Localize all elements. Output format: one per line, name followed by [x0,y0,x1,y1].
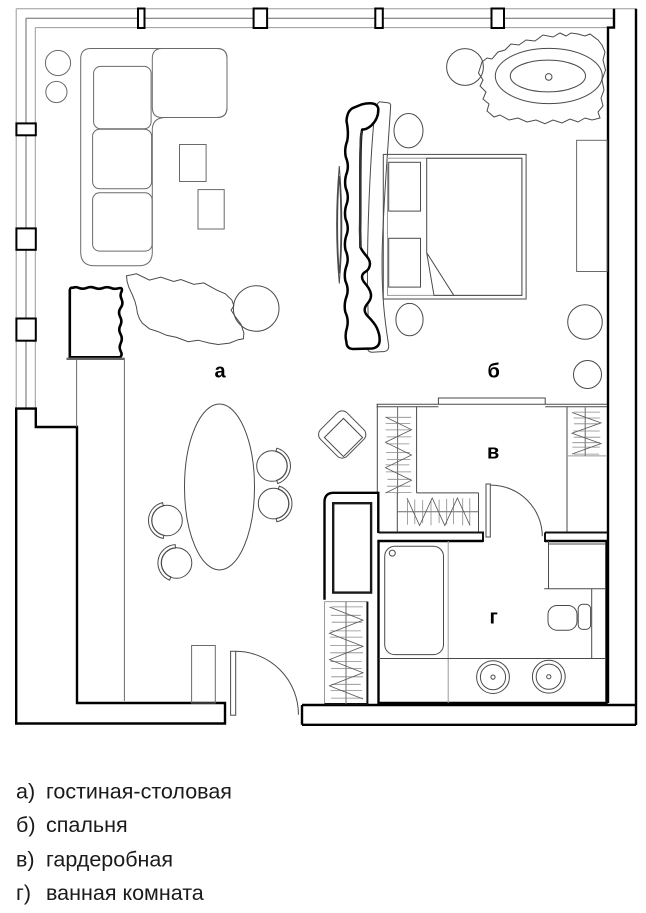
svg-text:гостиная-столовая: гостиная-столовая [46,780,232,804]
svg-text:а: а [215,361,227,383]
svg-text:г: г [490,607,498,629]
svg-text:а): а) [16,780,35,804]
svg-text:ванная комната: ванная комната [46,881,204,905]
svg-text:в: в [487,441,499,463]
svg-text:спальня: спальня [46,813,128,837]
svg-text:б: б [488,361,500,383]
svg-text:г): г) [16,881,31,905]
svg-text:б): б) [16,813,35,837]
svg-text:в): в) [16,847,35,871]
svg-text:гардеробная: гардеробная [46,847,173,871]
